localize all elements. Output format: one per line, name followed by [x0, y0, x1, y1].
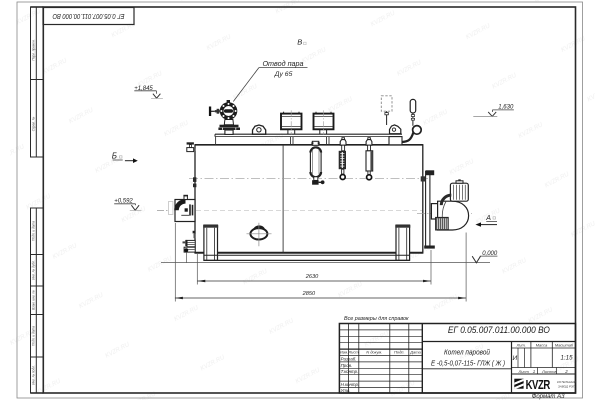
- svg-text:ЕГ 0.05.007.011.00.000 ВО: ЕГ 0.05.007.011.00.000 ВО: [52, 12, 124, 19]
- svg-text:2630: 2630: [305, 274, 319, 280]
- svg-text:2850: 2850: [302, 291, 316, 297]
- svg-text:Пров.: Пров.: [341, 363, 353, 368]
- svg-text:1,630: 1,630: [498, 104, 514, 110]
- svg-text:Инв. № дубл.: Инв. № дубл.: [32, 260, 36, 280]
- svg-text:Формат А3: Формат А3: [532, 394, 565, 400]
- svg-text:ЗАВОД РЭП: ЗАВОД РЭП: [558, 384, 576, 388]
- svg-text:Подп. и дата: Подп. и дата: [32, 326, 36, 346]
- svg-text:N докум.: N докум.: [366, 350, 382, 355]
- svg-text:Котел паровой: Котел паровой: [444, 349, 490, 357]
- svg-text:Н.контр.: Н.контр.: [341, 382, 360, 387]
- svg-text:Взам. инв. №: Взам. инв. №: [32, 290, 36, 310]
- svg-text:Т.контр.: Т.контр.: [341, 369, 359, 374]
- svg-text:Масштаб: Масштаб: [555, 342, 574, 347]
- svg-text:Б: Б: [112, 151, 117, 160]
- svg-text:Листов: Листов: [541, 369, 557, 374]
- svg-text:Перв. примен.: Перв. примен.: [32, 39, 36, 60]
- svg-text:Лист: Лист: [518, 369, 530, 374]
- svg-text:А: А: [485, 215, 491, 222]
- svg-text:Утв.: Утв.: [341, 388, 351, 393]
- svg-text:Е -0,5-0,07-115- ГЛЖ ( Ж ): Е -0,5-0,07-115- ГЛЖ ( Ж ): [431, 361, 505, 368]
- svg-text:Подп. и дата: Подп. и дата: [32, 221, 36, 241]
- svg-text:Инв. № подл.: Инв. № подл.: [32, 365, 36, 385]
- svg-text:KVZR: KVZR: [526, 377, 551, 392]
- svg-text:Изм.: Изм.: [340, 350, 349, 355]
- svg-text:Все размеры для справок: Все размеры для справок: [344, 316, 409, 322]
- svg-text:Дата: Дата: [409, 350, 421, 355]
- svg-text:В: В: [297, 38, 302, 47]
- svg-text:Лит.: Лит.: [516, 342, 526, 347]
- svg-text:2: 2: [564, 369, 568, 374]
- svg-text:Лист: Лист: [347, 350, 359, 355]
- svg-text:И: И: [512, 355, 517, 362]
- svg-text:Подп.: Подп.: [394, 350, 405, 355]
- svg-text:Масса: Масса: [536, 342, 548, 347]
- svg-text:Отвод пара: Отвод пара: [262, 59, 303, 68]
- svg-text:Ду 65: Ду 65: [274, 71, 293, 78]
- svg-text:1:15: 1:15: [560, 354, 573, 361]
- svg-text:Разраб.: Разраб.: [341, 356, 357, 361]
- svg-text:Справ. №: Справ. №: [32, 116, 36, 131]
- svg-text:КОТЕЛЬНЫЙ: КОТЕЛЬНЫЙ: [557, 380, 577, 384]
- svg-text:ЕГ 0.05.007.011.00.000 ВО: ЕГ 0.05.007.011.00.000 ВО: [448, 325, 550, 335]
